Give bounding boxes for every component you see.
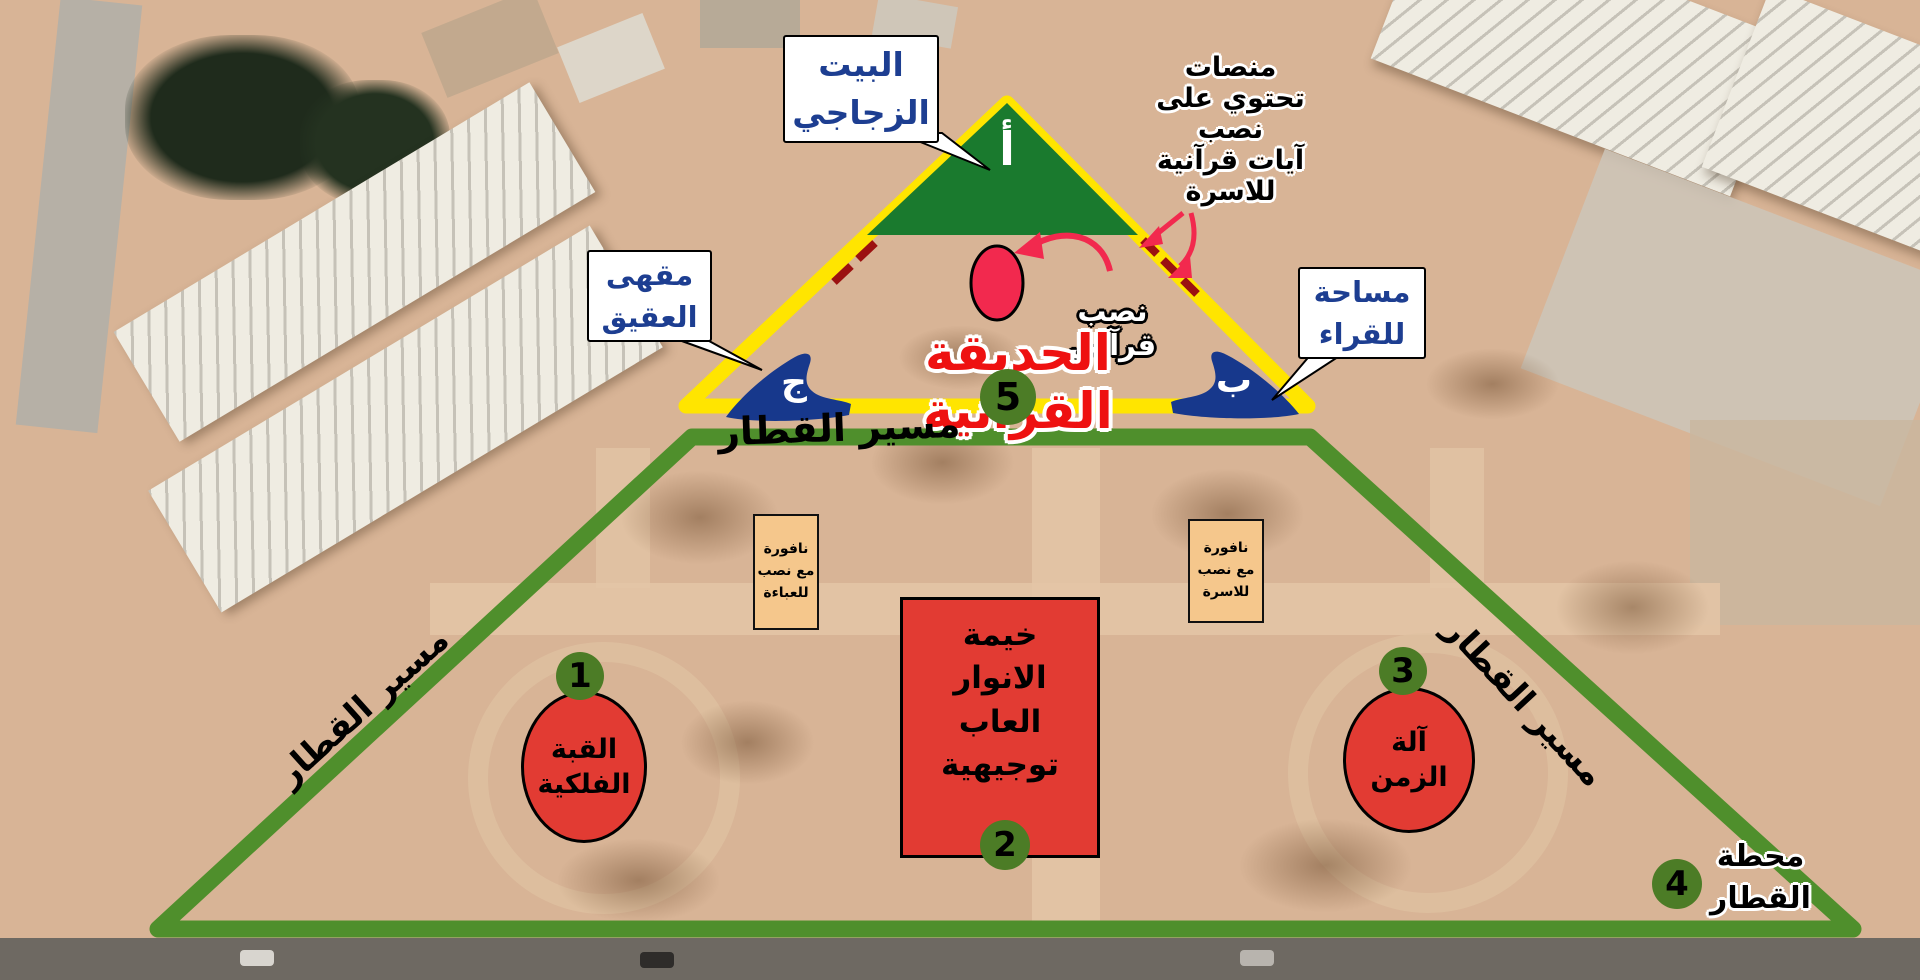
- zone-j-letter: ج: [773, 362, 815, 403]
- platforms-line: تحتوي على: [1138, 83, 1323, 114]
- planetarium-line1: القبة: [524, 732, 644, 767]
- reading-area-callout: مساحة للقراء: [1298, 267, 1426, 359]
- glass-house-callout: البيت الزجاجي: [783, 35, 939, 143]
- fountain-family-box: نافورة مع نصب للاسرة: [1188, 519, 1264, 623]
- fountain-abaya-line: للعباءة: [755, 583, 817, 605]
- platforms-line: نصب: [1138, 114, 1323, 145]
- train-station-line2: القطار: [1698, 878, 1823, 920]
- planetarium-line2: الفلكية: [524, 767, 644, 802]
- tent-line3: العاب: [903, 701, 1097, 744]
- marker-4: 4: [1652, 859, 1702, 909]
- zone-b-letter: ب: [1213, 360, 1255, 401]
- cafe-line2: العقيق: [589, 296, 710, 338]
- marker-2: 2: [980, 820, 1030, 870]
- fountain-family-line: مع نصب: [1190, 560, 1262, 582]
- fountain-family-line: نافورة: [1190, 538, 1262, 560]
- cafe-line1: مقهى: [589, 254, 710, 296]
- monument-arrowhead: [1014, 232, 1044, 259]
- glass-house-line1: البيت: [785, 41, 937, 89]
- platforms-note: منصات تحتوي على نصب آيات قرآنية للاسرة: [1138, 52, 1323, 207]
- train-station-label: محطة القطار: [1698, 836, 1823, 920]
- reading-area-line1: مساحة: [1300, 271, 1424, 313]
- planetarium-circle: القبة الفلكية: [521, 691, 647, 843]
- marker-5: 5: [980, 369, 1036, 425]
- tent-line1: خيمة: [903, 614, 1097, 657]
- reading-area-line2: للقراء: [1300, 313, 1424, 355]
- fountain-family-line: للاسرة: [1190, 582, 1262, 604]
- zone-a-letter: أ: [986, 122, 1028, 176]
- glass-house-line2: الزجاجي: [785, 89, 937, 137]
- annotated-satellite-map: أ ج ب البيت الزجاجي مقهى العقيق مساحة لل…: [0, 0, 1920, 980]
- fountain-abaya-box: نافورة مع نصب للعباءة: [753, 514, 819, 630]
- time-machine-line2: الزمن: [1346, 760, 1472, 795]
- train-station-line1: محطة: [1698, 836, 1823, 878]
- platforms-line: آيات قرآنية: [1138, 145, 1323, 176]
- tent-line4: توجيهية: [903, 744, 1097, 787]
- platforms-arrow: [1180, 213, 1194, 266]
- marker-3: 3: [1379, 647, 1427, 695]
- quranic-monument-oval: [971, 246, 1023, 320]
- cafe-callout: مقهى العقيق: [587, 250, 712, 342]
- fountain-abaya-line: مع نصب: [755, 561, 817, 583]
- fountain-abaya-line: نافورة: [755, 539, 817, 561]
- time-machine-line1: آلة: [1346, 725, 1472, 760]
- platforms-line: للاسرة: [1138, 176, 1323, 207]
- train-route-label-top: مسير القطار: [717, 402, 961, 454]
- platforms-line: منصات: [1138, 52, 1323, 83]
- time-machine-circle: آلة الزمن: [1343, 687, 1475, 833]
- marker-1: 1: [556, 652, 604, 700]
- tent-line2: الانوار: [903, 657, 1097, 700]
- tent-rectangle: خيمة الانوار العاب توجيهية: [900, 597, 1100, 858]
